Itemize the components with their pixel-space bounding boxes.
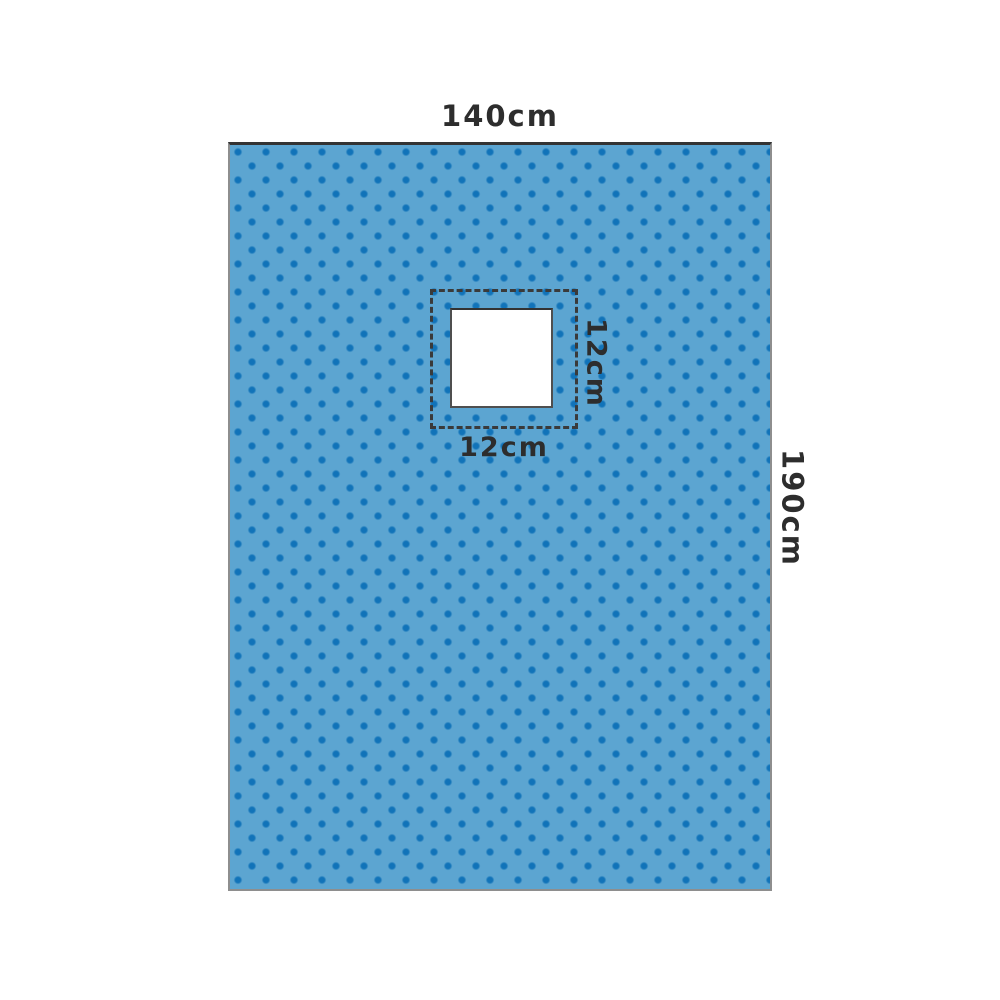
fenestration-hole [450,308,553,408]
drape-fabric: 12cm 12cm [228,142,772,891]
drape-width-label: 140cm [228,102,772,131]
fenestration-width-label: 12cm [430,434,578,461]
fenestration-height-label: 12cm [583,318,610,408]
drape-height-label: 190cm [778,449,807,567]
drape-diagram-canvas: 140cm 12cm 12cm 190cm [0,0,1000,1000]
